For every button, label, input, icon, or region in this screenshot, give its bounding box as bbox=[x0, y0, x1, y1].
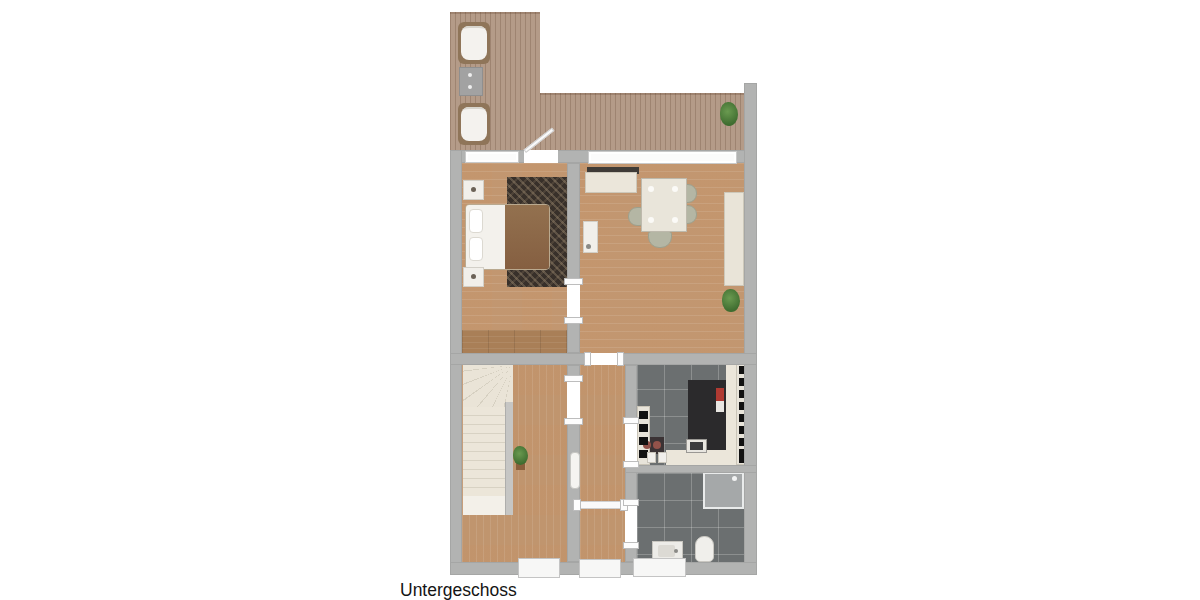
washbasin bbox=[658, 545, 675, 557]
door-jamb bbox=[564, 278, 583, 285]
desk-chair bbox=[586, 244, 591, 249]
sun-lounger bbox=[461, 26, 487, 60]
door-jamb bbox=[623, 417, 639, 424]
placemat bbox=[648, 217, 654, 223]
radiator bbox=[570, 452, 580, 489]
nightstand-lamp bbox=[471, 274, 476, 279]
bed-pillow bbox=[469, 237, 483, 261]
burner bbox=[653, 441, 661, 449]
door-jamb bbox=[564, 375, 583, 382]
door-jamb bbox=[617, 352, 624, 366]
stairs-room-exterior-door bbox=[518, 558, 560, 578]
door-jamb bbox=[584, 352, 591, 366]
shower bbox=[703, 472, 744, 509]
living-room-plant bbox=[722, 289, 740, 312]
terrace-door-opening bbox=[524, 150, 558, 163]
floor-label: Untergeschoss bbox=[400, 580, 517, 600]
placemat bbox=[672, 217, 678, 223]
shower-drain bbox=[732, 476, 737, 481]
hallway-door-leaf bbox=[579, 501, 624, 509]
living-hall-opening bbox=[590, 353, 618, 365]
interior-wall-kitchen-bath bbox=[625, 465, 757, 473]
bedroom-wardrobe bbox=[462, 330, 568, 353]
bed-pillow bbox=[469, 209, 483, 233]
door-jamb bbox=[564, 418, 583, 425]
bedroom-window bbox=[465, 151, 519, 163]
hallway-entrance-door bbox=[579, 559, 621, 578]
terrace-table bbox=[459, 67, 483, 96]
stairs-hall-door-opening bbox=[567, 382, 580, 418]
stairs-plant bbox=[513, 446, 528, 465]
toilet bbox=[695, 536, 714, 562]
stair-winders bbox=[463, 365, 513, 407]
placemat bbox=[648, 186, 654, 192]
bed-blanket bbox=[505, 205, 549, 269]
shelf-compartment bbox=[639, 424, 648, 432]
terrace-plant bbox=[720, 102, 738, 126]
door-jamb bbox=[623, 499, 639, 506]
step-stool bbox=[658, 452, 667, 463]
wall-cabinet bbox=[724, 192, 744, 286]
sideboard bbox=[585, 172, 637, 193]
washbasin-tap bbox=[674, 549, 678, 553]
bathroom-door-opening bbox=[625, 506, 637, 542]
bedroom-living-door-opening bbox=[567, 285, 580, 317]
desk bbox=[583, 221, 598, 253]
door-jamb bbox=[564, 317, 583, 324]
living-room-window bbox=[588, 151, 737, 164]
shelf-compartment bbox=[639, 411, 648, 419]
terrace-table-knob bbox=[468, 73, 472, 77]
bathroom-window-well bbox=[633, 558, 686, 577]
hallway-floor bbox=[580, 365, 625, 562]
door-jamb bbox=[623, 542, 639, 549]
terrace-table-knob bbox=[468, 85, 472, 89]
placemat bbox=[672, 186, 678, 192]
floorplan-canvas: Untergeschoss bbox=[0, 0, 1200, 600]
step-stool bbox=[647, 452, 656, 463]
terrace-deck-right bbox=[540, 93, 744, 153]
door-jamb bbox=[623, 461, 639, 468]
stair-railing bbox=[505, 402, 513, 515]
nightstand-lamp bbox=[471, 187, 476, 192]
exterior-wall-right bbox=[744, 83, 757, 575]
sun-lounger bbox=[461, 107, 487, 141]
kitchen-door-opening bbox=[625, 424, 637, 461]
coffee-machine bbox=[716, 388, 724, 412]
shelf-compartment bbox=[639, 437, 648, 445]
kitchen-sink-basin bbox=[690, 442, 703, 450]
door-jamb bbox=[573, 499, 581, 511]
interior-wall-bedroom-living bbox=[567, 163, 580, 353]
